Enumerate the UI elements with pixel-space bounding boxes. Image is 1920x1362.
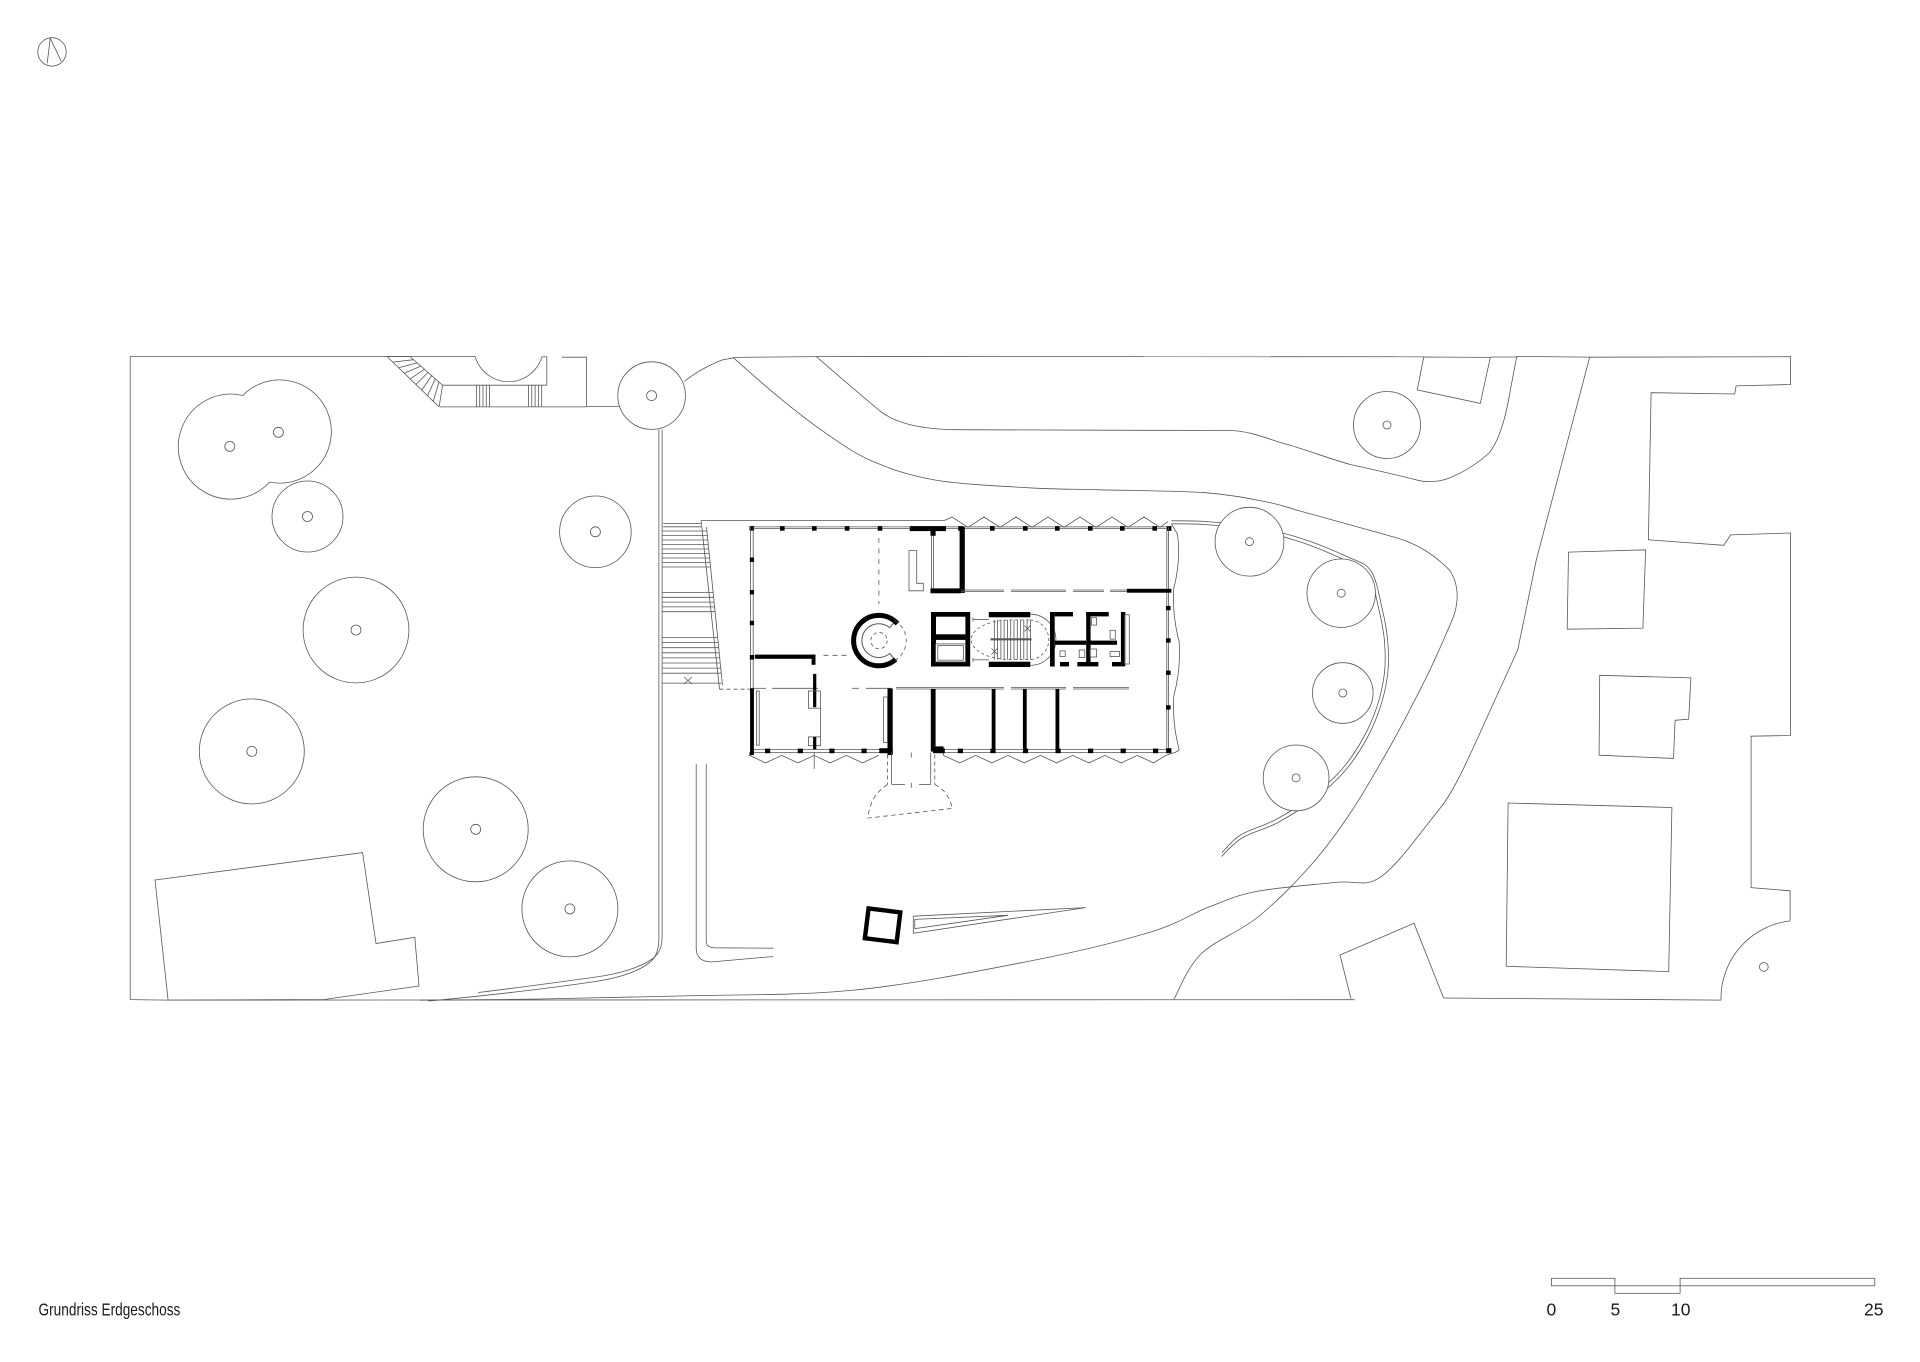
svg-text:5: 5 [1611,1300,1621,1320]
svg-text:10: 10 [1671,1300,1691,1320]
svg-text:25: 25 [1864,1300,1883,1320]
svg-text:Grundriss Erdgeschoss: Grundriss Erdgeschoss [39,1301,181,1320]
svg-text:0: 0 [1547,1300,1557,1320]
